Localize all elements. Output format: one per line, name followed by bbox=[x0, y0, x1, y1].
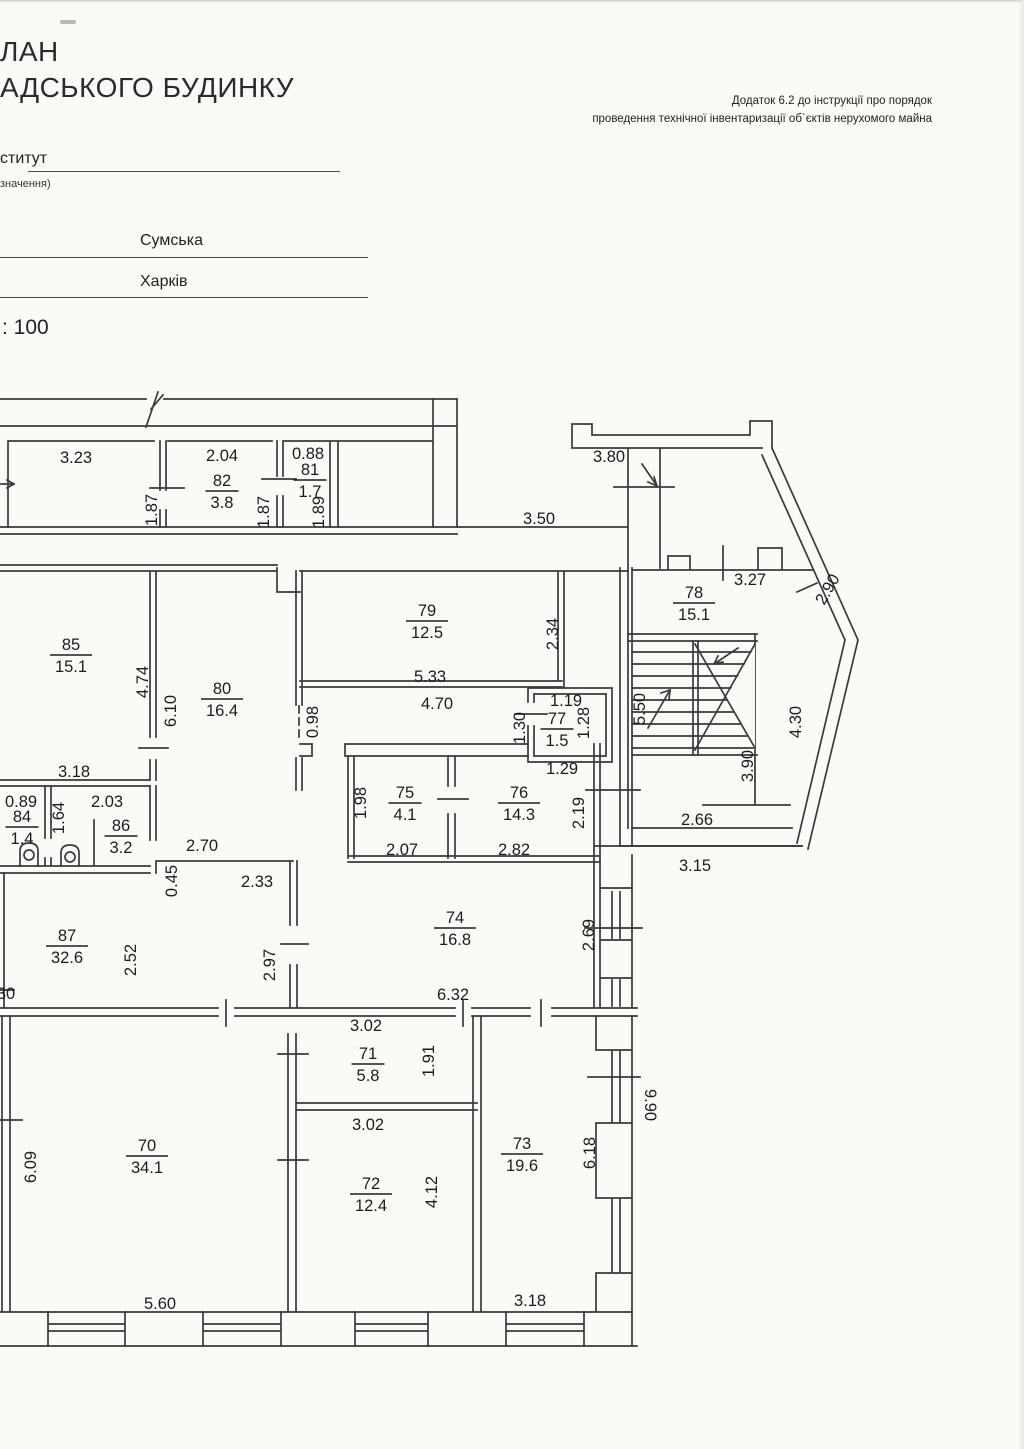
dimension-label: 2.82 bbox=[498, 841, 530, 859]
room-label: 8515.1 bbox=[50, 636, 92, 676]
room-area: 16.4 bbox=[206, 702, 238, 720]
dimension-label: 1.28 bbox=[575, 707, 593, 739]
room-label: 7319.6 bbox=[501, 1135, 543, 1175]
dimension-label: 3.18 bbox=[58, 763, 90, 781]
dimension-label: 3.50 bbox=[523, 510, 555, 528]
room-area: 12.4 bbox=[355, 1197, 387, 1215]
dimension-label: 2.33 bbox=[241, 873, 273, 891]
room-area: 1.4 bbox=[11, 830, 34, 848]
room-number: 72 bbox=[362, 1175, 380, 1193]
room-number: 71 bbox=[359, 1045, 377, 1063]
dimension-label: 2.70 bbox=[186, 837, 218, 855]
room-area: 16.8 bbox=[439, 931, 471, 949]
dimension-label: 1.91 bbox=[420, 1045, 438, 1077]
room-number: 73 bbox=[513, 1135, 531, 1153]
room-number: 85 bbox=[62, 636, 80, 654]
room-label: 8016.4 bbox=[201, 680, 243, 720]
dimension-label: 6.10 bbox=[162, 695, 180, 727]
dimension-label: 3.18 bbox=[514, 1292, 546, 1310]
room-area: 34.1 bbox=[131, 1159, 163, 1177]
room-label: 771.5 bbox=[541, 710, 574, 750]
dimension-label: 1.87 bbox=[255, 496, 273, 528]
dimension-label: 2.66 bbox=[681, 811, 713, 829]
dimension-label: 0.45 bbox=[163, 865, 181, 897]
bottom-facade-windows bbox=[48, 1312, 584, 1346]
room-area: 1.5 bbox=[546, 732, 569, 750]
room-label: 8732.6 bbox=[46, 927, 88, 967]
dimension-label: 3.27 bbox=[734, 571, 766, 589]
dimension-label: 2.19 bbox=[570, 797, 588, 829]
room-area: 3.8 bbox=[211, 494, 234, 512]
dimension-label: 1.98 bbox=[352, 787, 370, 819]
dimension-label: 5.50 bbox=[631, 693, 649, 725]
dimension-label: 9.90 bbox=[641, 1089, 659, 1121]
walls-stair-landing bbox=[620, 755, 802, 846]
dimension-label: 30 bbox=[0, 985, 15, 1003]
dimension-label: 2.04 bbox=[206, 447, 238, 465]
room-number: 78 bbox=[685, 584, 703, 602]
room-area: 32.6 bbox=[51, 949, 83, 967]
room-label: 754.1 bbox=[389, 784, 422, 824]
dimension-label: 4.70 bbox=[421, 695, 453, 713]
dimension-label: 4.12 bbox=[423, 1176, 441, 1208]
room-area: 5.8 bbox=[357, 1067, 380, 1085]
toilet-icon bbox=[61, 845, 79, 866]
room-number: 76 bbox=[510, 784, 528, 802]
room-number: 79 bbox=[418, 602, 436, 620]
room-area: 3.2 bbox=[110, 839, 133, 857]
dimension-label: 2.34 bbox=[544, 618, 562, 650]
dimension-label: 1.29 bbox=[546, 760, 578, 778]
room-area: 14.3 bbox=[503, 806, 535, 824]
wall-break-symbol bbox=[146, 392, 163, 427]
staircase bbox=[632, 634, 755, 755]
stair-direction-arrow-up bbox=[648, 690, 670, 728]
room-area: 12.5 bbox=[411, 624, 443, 642]
dimension-label: 3.90 bbox=[739, 750, 757, 782]
dimension-label: 2.69 bbox=[580, 919, 598, 951]
dimension-label: 4.74 bbox=[134, 666, 152, 698]
dimension-label: 4.30 bbox=[787, 706, 805, 738]
stair-direction-arrow-down bbox=[714, 648, 738, 664]
room-label: 841.4 bbox=[6, 808, 39, 848]
dimension-label: 3.02 bbox=[352, 1116, 384, 1134]
room-label: 863.2 bbox=[105, 817, 138, 857]
dimension-label: 6.18 bbox=[581, 1137, 599, 1169]
room-number: 75 bbox=[396, 784, 414, 802]
room-number: 84 bbox=[13, 808, 31, 826]
dimension-label: 0.98 bbox=[304, 706, 322, 738]
room-number: 80 bbox=[213, 680, 231, 698]
room-number: 87 bbox=[58, 927, 76, 945]
dimension-label: 5.33 bbox=[414, 668, 446, 686]
room-label: 7912.5 bbox=[406, 602, 448, 642]
room-label: 7034.1 bbox=[126, 1137, 168, 1177]
walls-toilets bbox=[0, 786, 293, 873]
room-label: 7614.3 bbox=[498, 784, 540, 824]
dimension-label: 2.07 bbox=[386, 841, 418, 859]
room-label: 715.8 bbox=[352, 1045, 385, 1085]
room-label: 823.8 bbox=[206, 472, 239, 512]
room-area: 15.1 bbox=[55, 658, 87, 676]
room-number: 81 bbox=[301, 461, 319, 479]
plan-labels: 3.231.872.041.870.881.893.803.503.272.90… bbox=[0, 445, 844, 1313]
dimension-label: 6.09 bbox=[22, 1151, 40, 1183]
dimension-label: 6.32 bbox=[437, 986, 469, 1004]
dimension-label: 5.60 bbox=[144, 1295, 176, 1313]
dimension-label: 2.97 bbox=[261, 949, 279, 981]
room-area: 1.7 bbox=[299, 483, 322, 501]
dimension-label: 1.64 bbox=[50, 802, 68, 834]
walls-rooms-87-74 bbox=[0, 855, 637, 1026]
room-number: 86 bbox=[112, 817, 130, 835]
dimension-label: 1.87 bbox=[143, 494, 161, 526]
room-label: 811.7 bbox=[294, 461, 327, 501]
dimension-label: 3.15 bbox=[679, 857, 711, 875]
floor-plan: 3.231.872.041.870.881.893.803.503.272.90… bbox=[0, 0, 1024, 1449]
room-number: 74 bbox=[446, 909, 464, 927]
room-number: 82 bbox=[213, 472, 231, 490]
dimension-label: 1.30 bbox=[511, 712, 529, 744]
dimension-label: 3.02 bbox=[350, 1017, 382, 1035]
dimension-label: 2.52 bbox=[122, 944, 140, 976]
room-number: 70 bbox=[138, 1137, 156, 1155]
room-area: 4.1 bbox=[394, 806, 417, 824]
dimension-label: 3.80 bbox=[593, 448, 625, 466]
room-area: 19.6 bbox=[506, 1157, 538, 1175]
room-label: 7416.8 bbox=[434, 909, 476, 949]
dimension-label: 3.23 bbox=[60, 449, 92, 467]
dimension-label: 2.03 bbox=[91, 793, 123, 811]
room-number: 77 bbox=[548, 710, 566, 728]
room-area: 15.1 bbox=[678, 606, 710, 624]
room-label: 7815.1 bbox=[673, 584, 715, 624]
room-label: 7212.4 bbox=[350, 1175, 392, 1215]
walls-entrance bbox=[572, 421, 858, 849]
door-arrow-left-edge bbox=[1, 480, 14, 488]
door-swing-arrow-vestibule bbox=[642, 464, 657, 486]
